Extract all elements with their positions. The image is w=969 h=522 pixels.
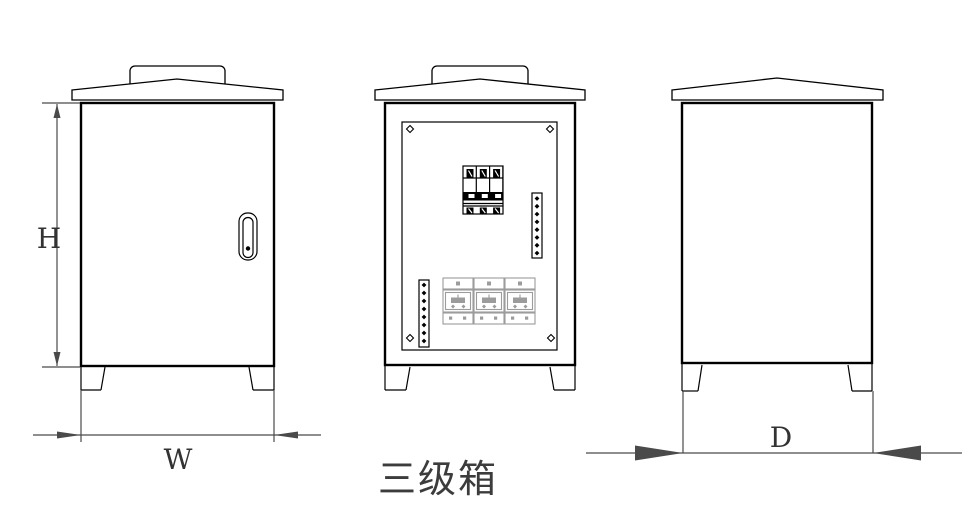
width-label: W xyxy=(164,443,193,476)
left-leg xyxy=(385,365,410,390)
left-leg xyxy=(682,363,702,391)
cabinet-body xyxy=(682,103,872,363)
width-dimension: W xyxy=(33,390,321,476)
roof xyxy=(672,78,883,100)
depth-dimension: D xyxy=(586,391,962,461)
height-label: H xyxy=(37,222,61,255)
cabinet-body xyxy=(385,103,575,365)
depth-label: D xyxy=(770,421,792,454)
open-panel-view xyxy=(375,66,585,390)
cad-drawing-canvas: H W xyxy=(0,0,969,522)
d-arrow-left-icon xyxy=(635,446,683,461)
w-arrow-right-icon xyxy=(274,432,298,439)
right-leg xyxy=(848,363,872,391)
w-arrow-left-icon xyxy=(57,432,81,439)
right-leg xyxy=(249,366,274,390)
roof xyxy=(375,79,585,100)
right-leg xyxy=(550,365,575,390)
roof xyxy=(72,79,283,100)
side-view: D xyxy=(586,78,962,461)
front-view: H W xyxy=(33,66,321,476)
h-arrow-up-icon xyxy=(54,104,61,118)
cabinet-body xyxy=(81,103,274,366)
left-leg xyxy=(81,366,105,390)
h-arrow-down-icon xyxy=(54,352,61,366)
technical-drawing-page: H W xyxy=(0,0,969,522)
handle-lock-dot xyxy=(246,246,250,250)
height-dimension: H xyxy=(37,103,80,367)
d-arrow-right-icon xyxy=(873,446,921,461)
drawing-title: 三级箱 xyxy=(378,457,498,501)
